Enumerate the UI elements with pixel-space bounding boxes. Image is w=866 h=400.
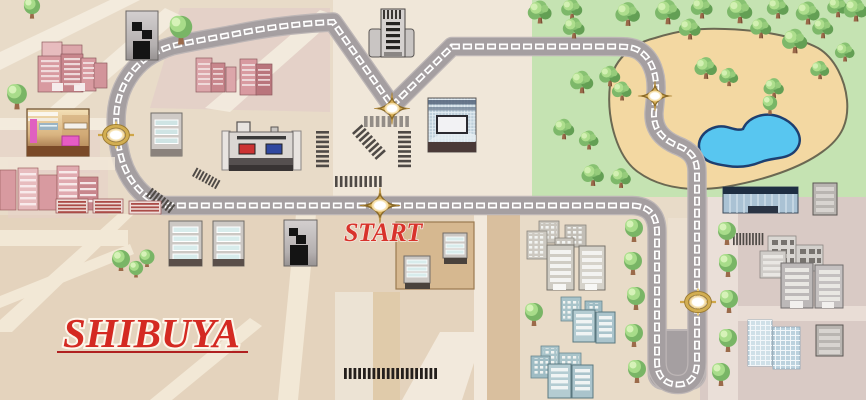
svg-text:SHIBUYA: SHIBUYA <box>63 310 240 356</box>
svg-text:START: START <box>344 218 423 247</box>
